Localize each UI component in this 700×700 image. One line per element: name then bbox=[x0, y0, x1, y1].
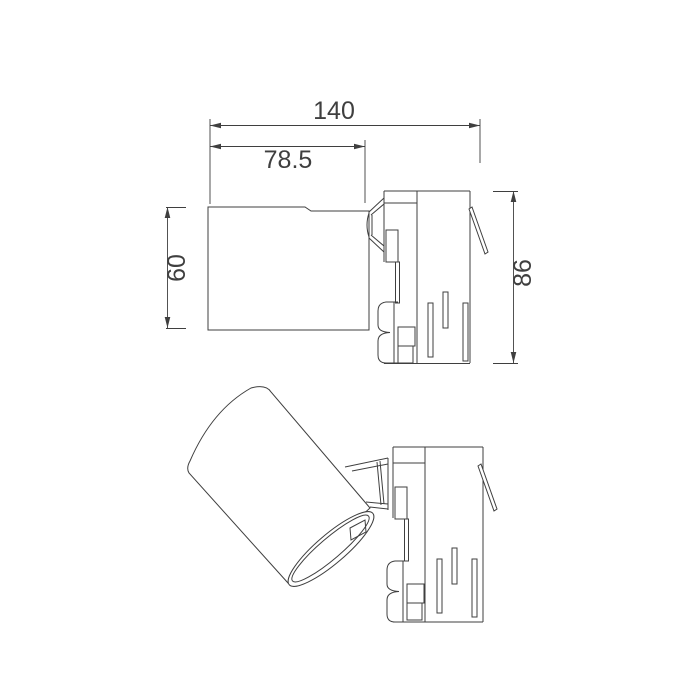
screw-shaft bbox=[405, 519, 409, 561]
contact-slot bbox=[463, 303, 468, 361]
track-adapter-tilted-view bbox=[387, 447, 497, 622]
arrowhead-bottom bbox=[165, 317, 171, 328]
arrowhead-right bbox=[354, 144, 365, 150]
knuckle-cone bbox=[367, 198, 384, 252]
locking-lever bbox=[478, 464, 497, 511]
arrowhead-top bbox=[165, 207, 171, 218]
terminal-box bbox=[407, 584, 424, 603]
dimension-head-diameter: 60 bbox=[163, 207, 191, 329]
dimension-head-length: 78.5 bbox=[210, 140, 365, 203]
wing-nut bbox=[378, 302, 398, 363]
terminal-box-lower bbox=[407, 603, 422, 620]
terminal-box-lower bbox=[398, 346, 413, 363]
arrowhead-left bbox=[210, 123, 221, 129]
contact-slot bbox=[472, 559, 477, 617]
contact-slot bbox=[437, 559, 442, 613]
arrowhead-left bbox=[210, 144, 221, 150]
track-adapter bbox=[378, 191, 488, 364]
arrowhead-top bbox=[511, 191, 517, 202]
locking-lever bbox=[469, 207, 488, 254]
screw-shaft bbox=[396, 262, 400, 303]
dimension-value-total-height: 86 bbox=[509, 259, 537, 287]
terminal-box bbox=[398, 327, 415, 346]
lamp-body bbox=[208, 207, 369, 330]
dimension-total-height: 86 bbox=[493, 191, 537, 364]
arrowhead-right bbox=[469, 123, 480, 129]
contact-slot bbox=[443, 292, 448, 328]
pivot-stem bbox=[386, 230, 398, 262]
view-tilted bbox=[188, 387, 497, 622]
dimension-value-head-length: 78.5 bbox=[264, 146, 313, 174]
dimension-value-head-diameter: 60 bbox=[163, 254, 191, 282]
view-straight bbox=[208, 191, 488, 364]
contact-slot bbox=[428, 303, 433, 357]
pivot-stem bbox=[395, 487, 407, 519]
wing-nut bbox=[387, 561, 407, 622]
contact-slot bbox=[452, 548, 457, 584]
technical-drawing: 140 78.5 60 86 bbox=[0, 0, 700, 700]
arrowhead-bottom bbox=[511, 352, 517, 363]
drawing-canvas: 140 78.5 60 86 bbox=[0, 0, 700, 700]
dimension-value-overall-length: 140 bbox=[313, 97, 355, 125]
dimension-overall-length: 140 bbox=[210, 97, 480, 204]
